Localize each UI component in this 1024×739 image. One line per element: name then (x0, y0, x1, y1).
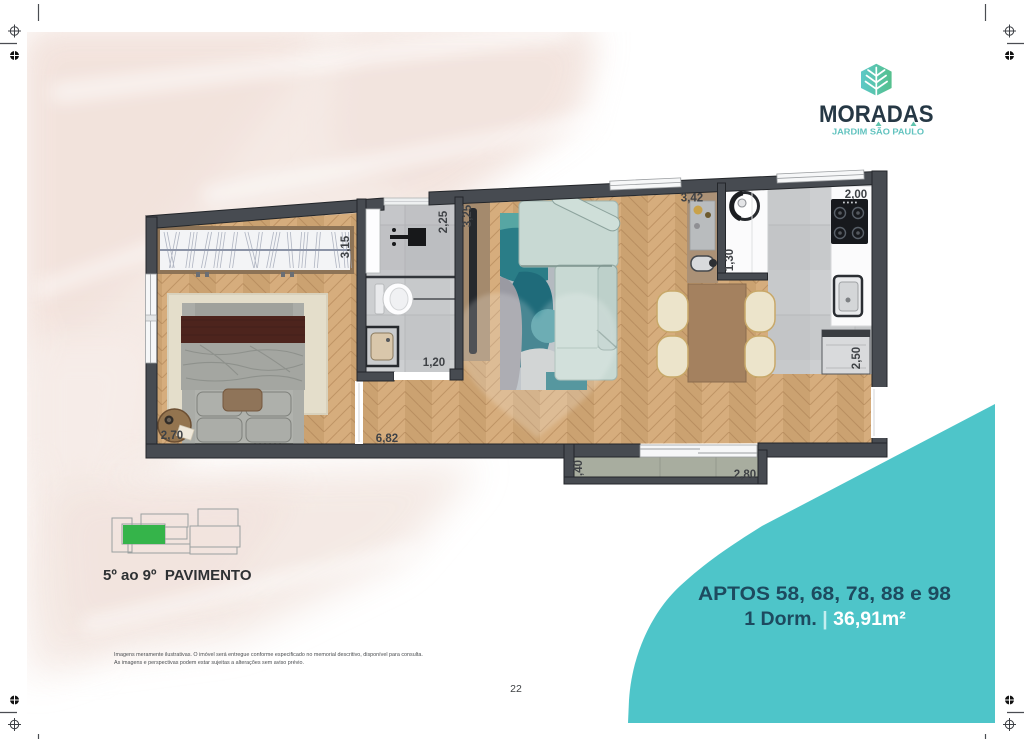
svg-text:1,20: 1,20 (423, 357, 445, 369)
svg-text:3,25: 3,25 (462, 204, 474, 227)
svg-text:2,00: 2,00 (845, 189, 867, 201)
svg-text:1,30: 1,30 (724, 249, 736, 271)
svg-text:As imagens e perspectivas pode: As imagens e perspectivas podem estar su… (114, 660, 304, 666)
svg-text:22: 22 (510, 683, 522, 695)
svg-text:1 Dorm. | 36,91m²: 1 Dorm. | 36,91m² (744, 608, 906, 630)
svg-text:MORADAS: MORADAS (819, 101, 934, 128)
svg-text:Imagens meramente ilustrativas: Imagens meramente ilustrativas. O imóvel… (114, 652, 423, 658)
svg-text:,40: ,40 (573, 460, 585, 476)
svg-text:3,15: 3,15 (340, 235, 352, 258)
svg-text:2,80: 2,80 (734, 469, 756, 481)
svg-text:APTOS 58, 68, 78, 88 e 98: APTOS 58, 68, 78, 88 e 98 (698, 583, 951, 605)
svg-text:2,25: 2,25 (438, 210, 450, 233)
svg-text:3,42: 3,42 (681, 193, 703, 205)
svg-text:2,70: 2,70 (161, 430, 183, 442)
svg-text:6,82: 6,82 (376, 433, 398, 445)
svg-text:JARDIM SÃO PAULO: JARDIM SÃO PAULO (832, 128, 924, 137)
svg-text:5º ao 9º PAVIMENTO: 5º ao 9º PAVIMENTO (103, 567, 252, 584)
svg-text:2,50: 2,50 (851, 347, 863, 369)
